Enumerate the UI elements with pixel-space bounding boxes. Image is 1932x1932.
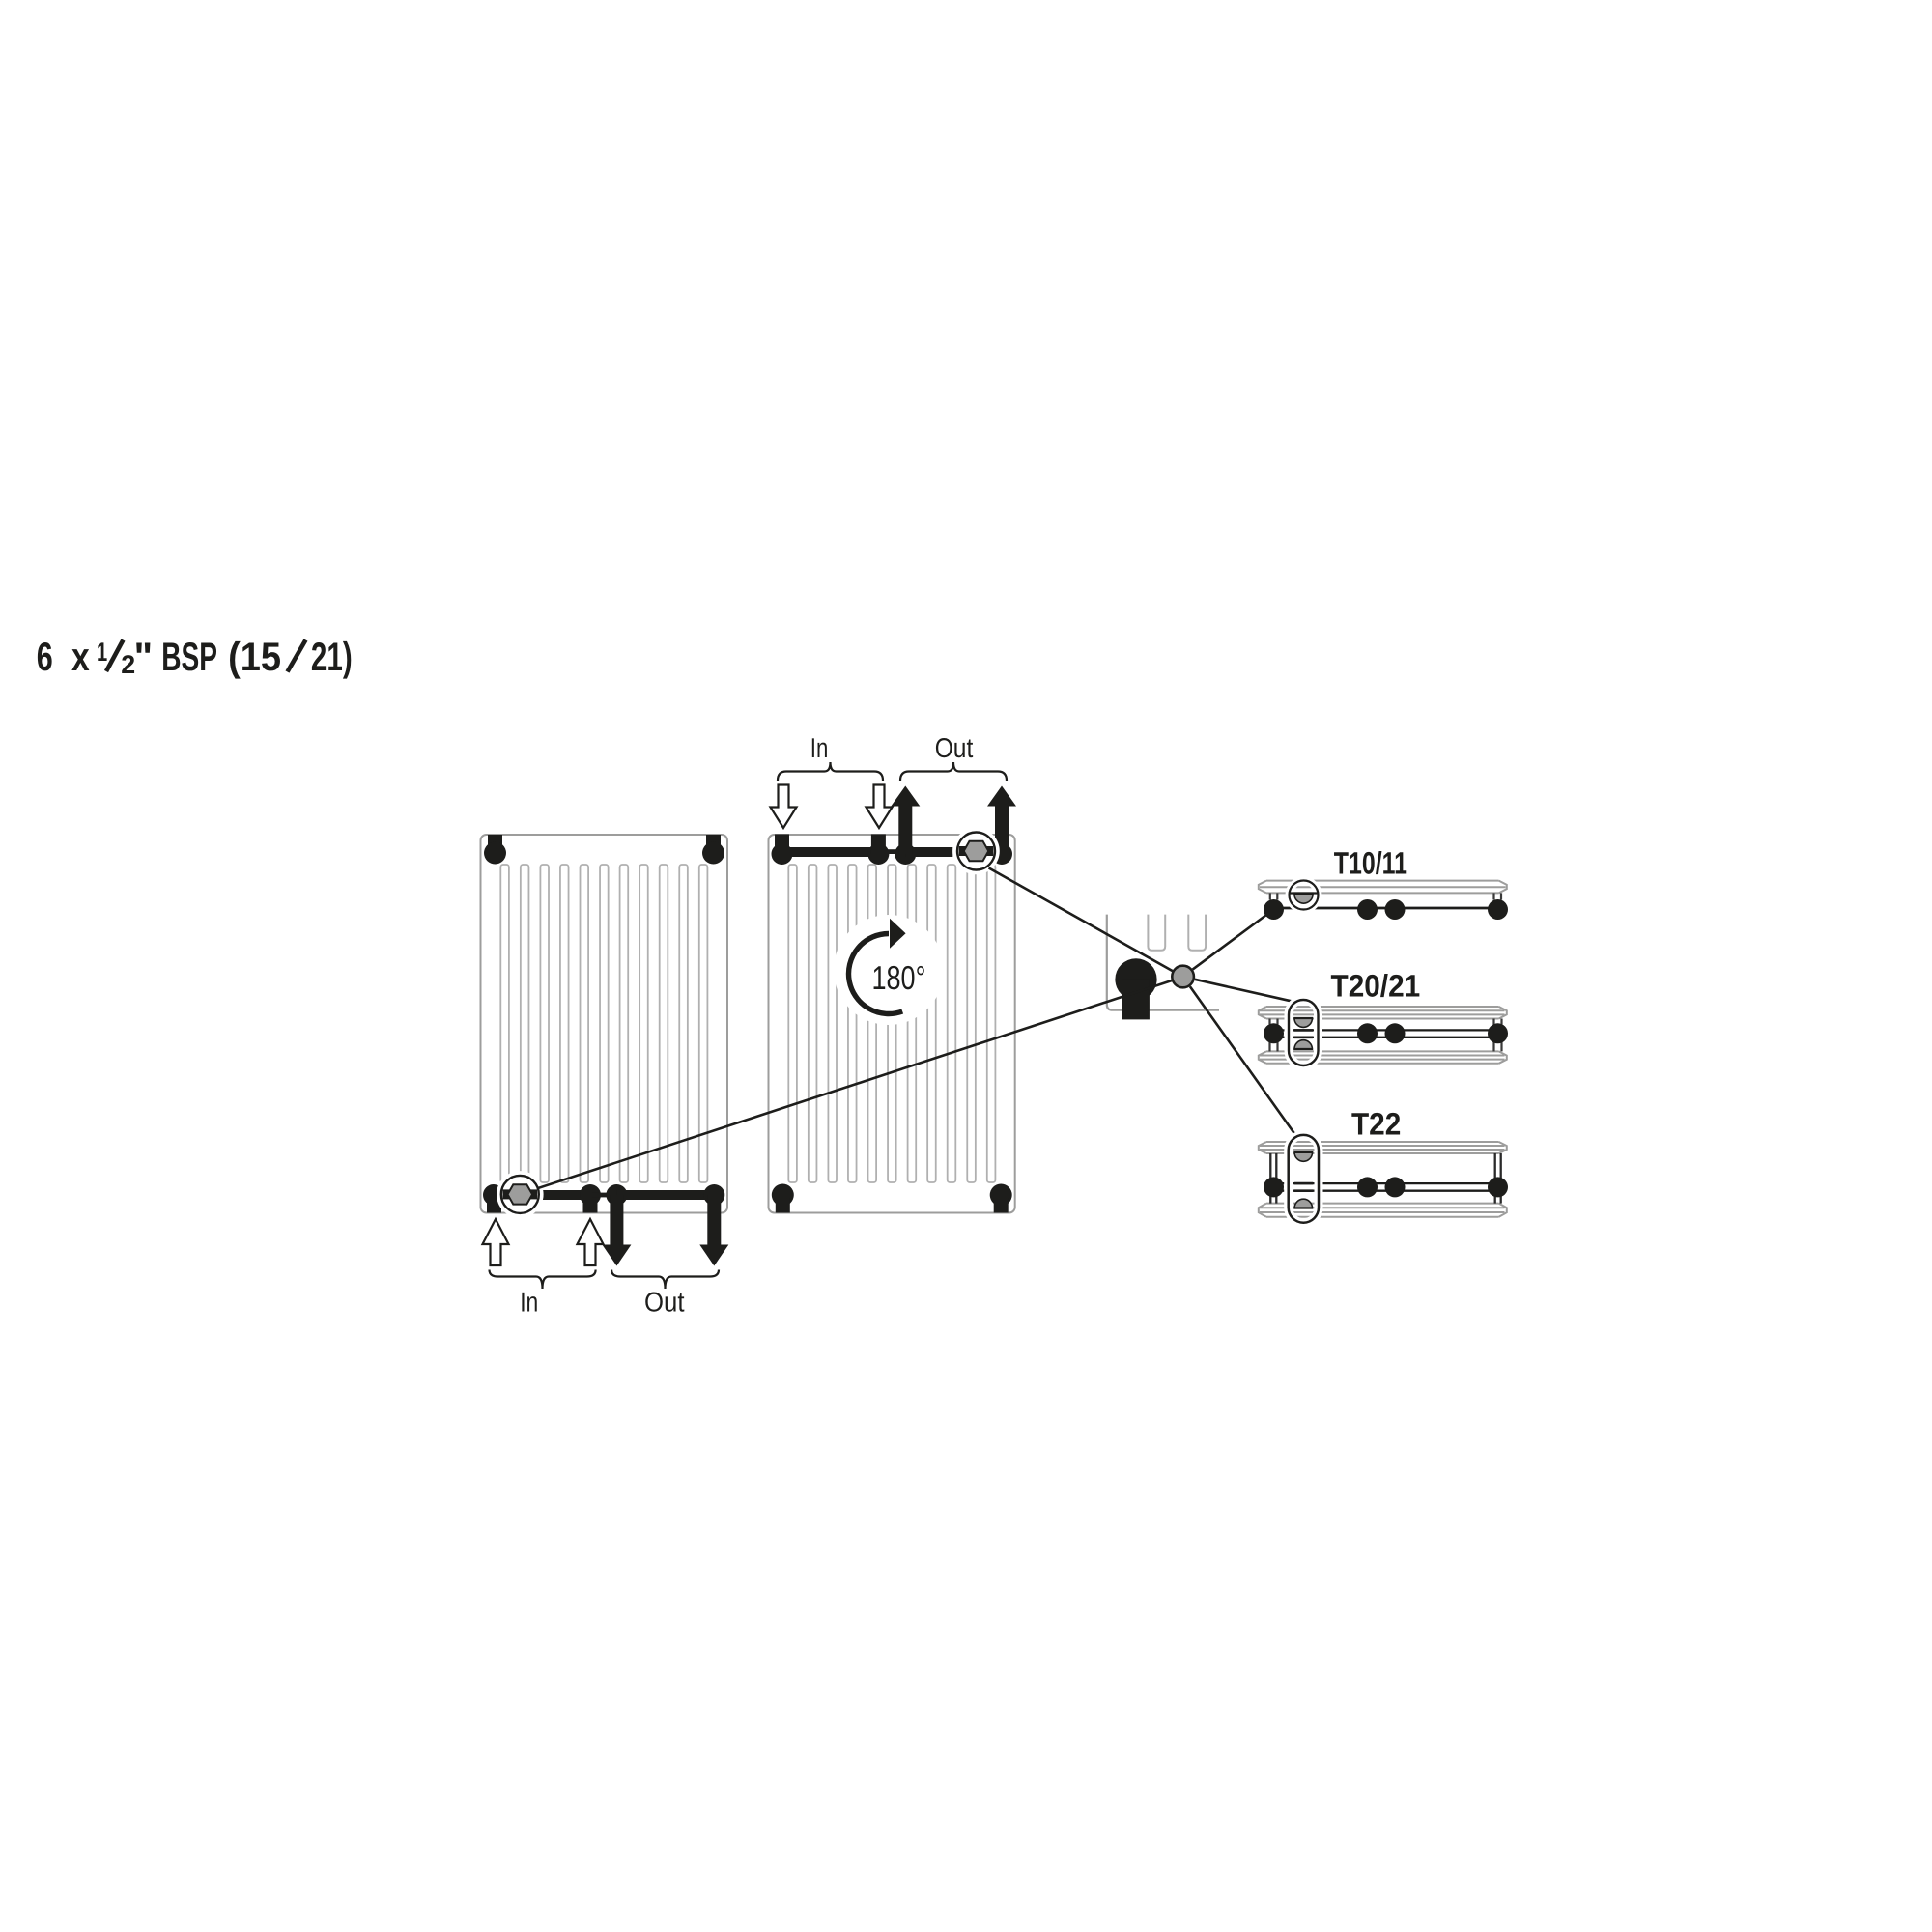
svg-text:Out: Out xyxy=(935,733,974,764)
svg-text:180°: 180° xyxy=(872,960,926,997)
svg-text:(15: (15 xyxy=(228,634,281,679)
svg-text:x: x xyxy=(71,634,90,679)
svg-text:T22: T22 xyxy=(1351,1107,1401,1142)
svg-text:6: 6 xyxy=(37,634,53,679)
svg-text:BSP: BSP xyxy=(161,634,217,679)
svg-text:T20/21: T20/21 xyxy=(1331,968,1421,1003)
svg-text:In: In xyxy=(810,733,829,764)
svg-text:T10/11: T10/11 xyxy=(1334,846,1407,881)
svg-text:1: 1 xyxy=(97,638,107,667)
svg-text:In: In xyxy=(520,1288,538,1319)
svg-text:21): 21) xyxy=(311,634,353,679)
svg-text:Out: Out xyxy=(644,1288,685,1319)
svg-text:": " xyxy=(134,634,154,679)
